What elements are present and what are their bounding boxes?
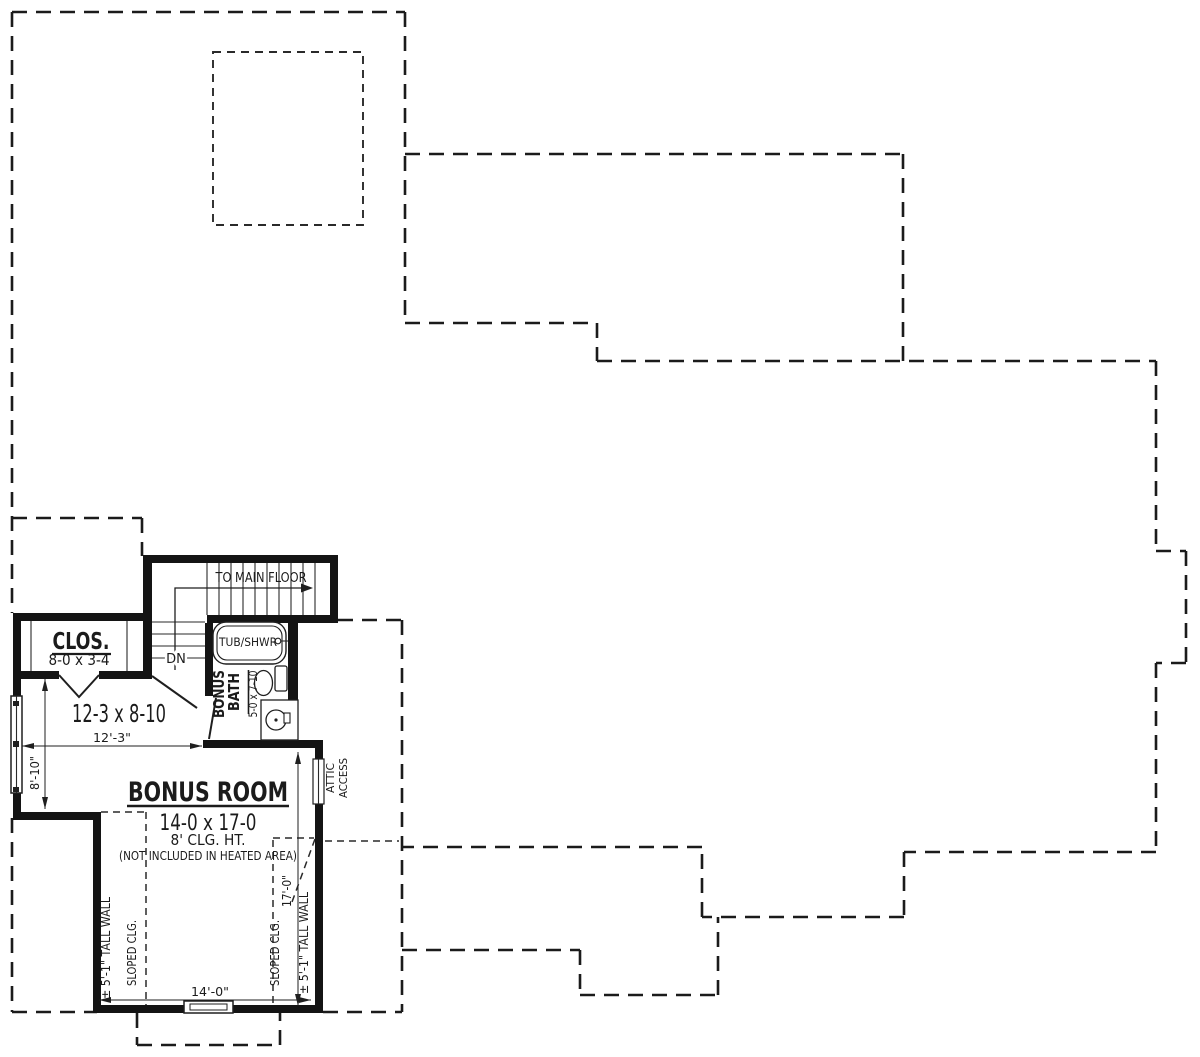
attic-access-line1: ATTIC <box>324 763 337 793</box>
bonus-room-name-label: BONUS ROOM <box>128 777 288 808</box>
wall-bonus-right-below-attic <box>315 803 323 1005</box>
toilet-tank-icon <box>275 666 287 691</box>
bottom-window-sash <box>190 1004 227 1010</box>
tall-wall-right-label: ± 5'-1" TALL WALL <box>297 892 311 994</box>
wall-closet-top <box>13 613 144 621</box>
wall-step <box>13 812 101 820</box>
wall-closet-stair-divider <box>143 563 152 679</box>
closet-size-label: 8-0 x 3-4 <box>49 651 110 669</box>
bonus-room-ceiling-label: 8' CLG. HT. <box>171 831 246 849</box>
bonus-room-depth-dim-label: 17'-0" <box>280 875 294 907</box>
wall-closet-bottom-right <box>99 671 152 679</box>
wall-stair-top <box>143 555 338 563</box>
bath-name-line2: BATH <box>225 673 243 711</box>
tall-wall-left-label: ± 5'-1" TALL WALL <box>99 897 113 999</box>
sink-faucet-icon <box>284 713 290 723</box>
sink-drain-dot <box>274 718 277 721</box>
loft-size-label: 12-3 x 8-10 <box>72 699 166 728</box>
wall-bonus-bottom-left <box>93 1005 184 1013</box>
attic-access-line2: ACCESS <box>337 758 350 798</box>
sloped-ceiling-dashed-lines <box>101 812 399 1005</box>
bath-size-label: 5-0 x 7-10 <box>246 671 260 718</box>
floor-plan-sheet: TO MAIN FLOOR DN CLOS. 8-0 x 3-4 12-3 x … <box>0 0 1200 1057</box>
wall-bonus-right-above-attic <box>315 748 323 760</box>
bonus-room-note-label: (NOT INCLUDED IN HEATED AREA) <box>119 848 297 863</box>
stair-down-label: DN <box>166 652 186 667</box>
left-window <box>11 696 22 793</box>
wall-closet-bottom-left <box>13 671 59 679</box>
roof-outline-dashed <box>12 12 1186 1045</box>
floor-plan-drawing: TO MAIN FLOOR DN CLOS. 8-0 x 3-4 12-3 x … <box>0 0 1200 1057</box>
left-window-tick-bottom <box>13 787 19 792</box>
closet-double-door <box>59 675 99 697</box>
sloped-ceiling-left-label: SLOPED CLG. <box>125 920 139 986</box>
left-window-tick-mid <box>13 741 19 747</box>
wall-stair-right <box>330 563 338 623</box>
left-window-tick-top <box>13 701 19 706</box>
loft-depth-dim-label: 8'-10" <box>28 756 42 790</box>
bottom-window <box>184 1001 233 1013</box>
wall-bonus-bottom-right <box>233 1005 323 1013</box>
sloped-ceiling-right-label: SLOPED CLG. <box>268 920 282 986</box>
bonus-room-width-dim-label: 14'-0" <box>191 985 229 999</box>
stair-direction-label: TO MAIN FLOOR <box>215 570 307 586</box>
chimney-dashed-box <box>213 52 363 225</box>
attic-access-panel <box>313 759 324 804</box>
loft-width-dim-label: 12'-3" <box>93 731 131 745</box>
tub-label: TUB/SHWR <box>218 635 277 649</box>
wall-bath-bottom <box>203 740 323 748</box>
wall-left-upper <box>13 621 21 697</box>
